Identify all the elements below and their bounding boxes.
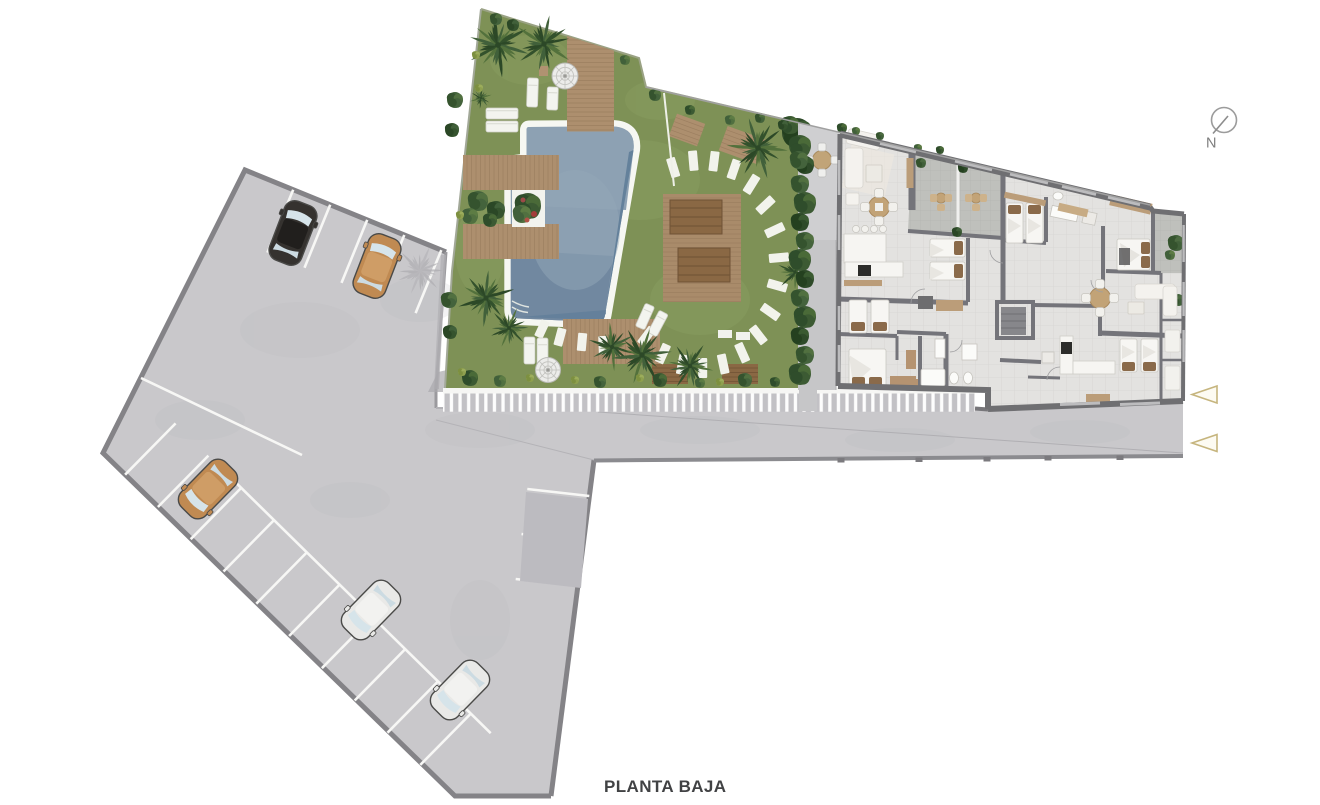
svg-text:PLANTA BAJA: PLANTA BAJA: [604, 777, 726, 796]
svg-text:N: N: [1206, 136, 1216, 152]
